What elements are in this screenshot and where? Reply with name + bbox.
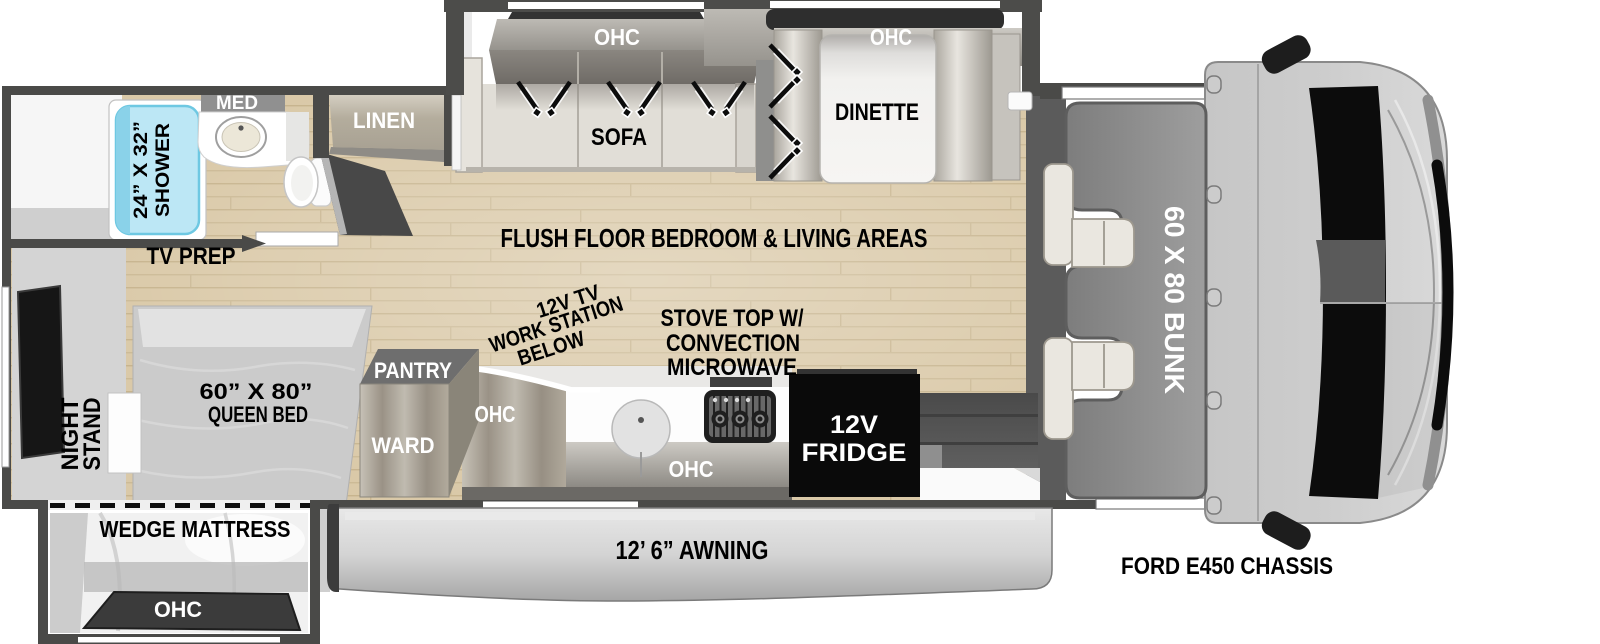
svg-text:WARD: WARD: [372, 433, 435, 458]
svg-text:OHC: OHC: [475, 401, 516, 427]
svg-text:12’ 6” AWNING: 12’ 6” AWNING: [616, 535, 769, 565]
svg-text:OHC: OHC: [669, 456, 714, 482]
svg-text:60” X 80”QUEEN BED: 60” X 80”QUEEN BED: [200, 379, 313, 427]
svg-text:PANTRY: PANTRY: [374, 358, 452, 383]
svg-text:OHC: OHC: [870, 24, 912, 50]
svg-text:SOFA: SOFA: [591, 124, 647, 151]
svg-text:FLUSH FLOOR BEDROOM & LIVING A: FLUSH FLOOR BEDROOM & LIVING AREAS: [501, 223, 928, 253]
svg-text:WEDGE MATTRESS: WEDGE MATTRESS: [100, 516, 291, 542]
svg-text:24” X 32”SHOWER: 24” X 32”SHOWER: [130, 121, 174, 219]
svg-text:OHC: OHC: [154, 597, 202, 622]
svg-text:DINETTE: DINETTE: [835, 99, 919, 126]
svg-text:OHC: OHC: [594, 24, 640, 50]
svg-text:TV PREP: TV PREP: [147, 243, 236, 270]
svg-text:STOVE TOP W/CONVECTIONMICROWAV: STOVE TOP W/CONVECTIONMICROWAVE: [661, 305, 804, 381]
svg-text:60 X 80 BUNK: 60 X 80 BUNK: [1159, 206, 1190, 394]
svg-text:FORD E450 CHASSIS: FORD E450 CHASSIS: [1121, 553, 1333, 580]
svg-text:LINEN: LINEN: [353, 108, 415, 133]
svg-text:MED: MED: [216, 93, 258, 114]
svg-text:NIGHTSTAND: NIGHTSTAND: [57, 397, 106, 470]
